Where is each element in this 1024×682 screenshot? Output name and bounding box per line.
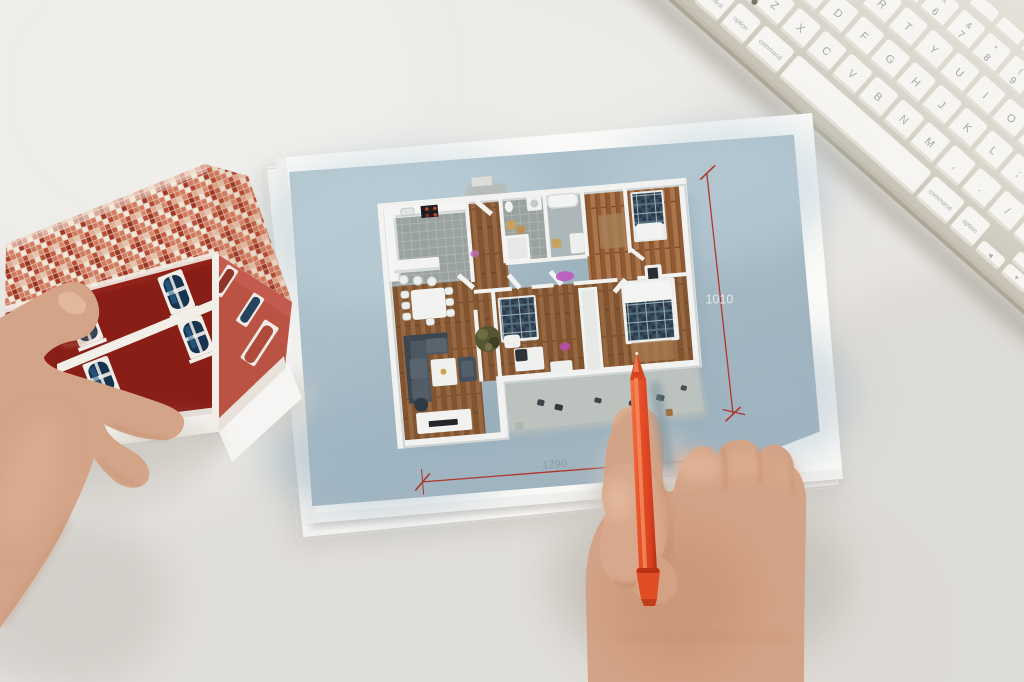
svg-text:1290: 1290 bbox=[542, 458, 567, 472]
svg-text:1010: 1010 bbox=[705, 292, 733, 306]
